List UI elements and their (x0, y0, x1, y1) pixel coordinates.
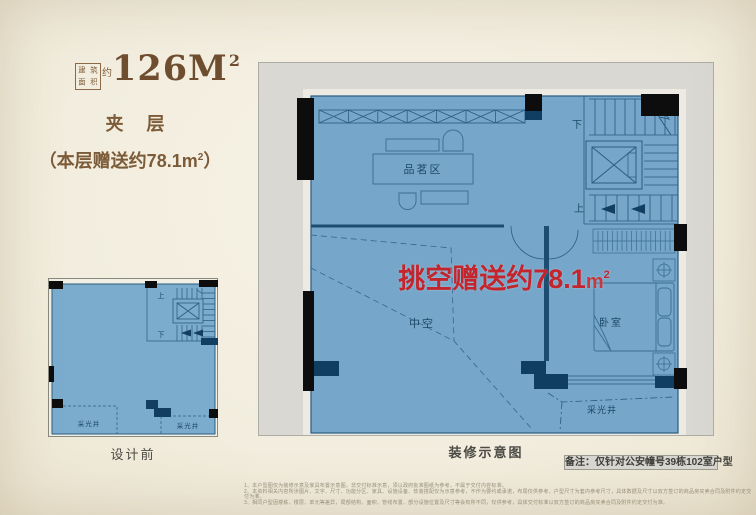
bedroom-label: 卧室 (599, 316, 623, 329)
light-well-label: 采光井 (78, 419, 101, 428)
bonus-highlight: 挑空赠送约78.1m2 (389, 257, 619, 296)
before-plan-panel: 上 下 采光井 采光井 (48, 278, 218, 437)
before-plan-caption: 设计前 (48, 444, 218, 463)
up-label: 上 (574, 203, 584, 215)
disclaimer-text: 1、本户型图仅为装修示意及家具布置示意图，非交付标准示意，须以政府批准图纸为参考… (244, 484, 754, 506)
bonus-note: （本层赠送约78.1m2） (10, 147, 250, 173)
up-label: 上 (158, 291, 165, 300)
floorplan-page: 建 筑 面 积 约 126M2 夹 层 （本层赠送约78.1m2） (0, 0, 756, 515)
prefix-char: 建 (77, 65, 87, 75)
prefix-char: 积 (89, 77, 99, 87)
disclaimer-line: 3、相同户型因楼栋、楼层、单元等差异，局部结构、面积、管线布置、部分设施位置及尺… (244, 501, 754, 507)
down-label: 下 (572, 120, 582, 131)
area-sup: 2 (229, 51, 241, 70)
down-label: 下 (158, 331, 165, 339)
light-well-label: 采光井 (587, 404, 617, 415)
approx-label: 约 (102, 64, 112, 79)
floor-title: 夹 层 (40, 110, 230, 136)
area-prefix-label: 建 筑 面 积 (75, 63, 101, 90)
area-value: 126M2 (112, 48, 241, 89)
main-plan-panel: 品茗区 (258, 62, 714, 436)
remark-note: 备注：仅针对公安幢号39栋102室户型 (564, 455, 718, 470)
tea-area-label: 品茗区 (404, 163, 443, 176)
area-headline: 建 筑 面 积 约 126M2 (70, 52, 240, 92)
before-plan-drawing: 上 下 采光井 采光井 (49, 279, 219, 438)
light-well-label: 采光井 (177, 421, 200, 430)
main-plan-drawing: 品茗区 (259, 63, 715, 437)
void-label: 中空 (409, 316, 435, 330)
prefix-char: 面 (77, 77, 87, 87)
prefix-char: 筑 (89, 65, 99, 75)
